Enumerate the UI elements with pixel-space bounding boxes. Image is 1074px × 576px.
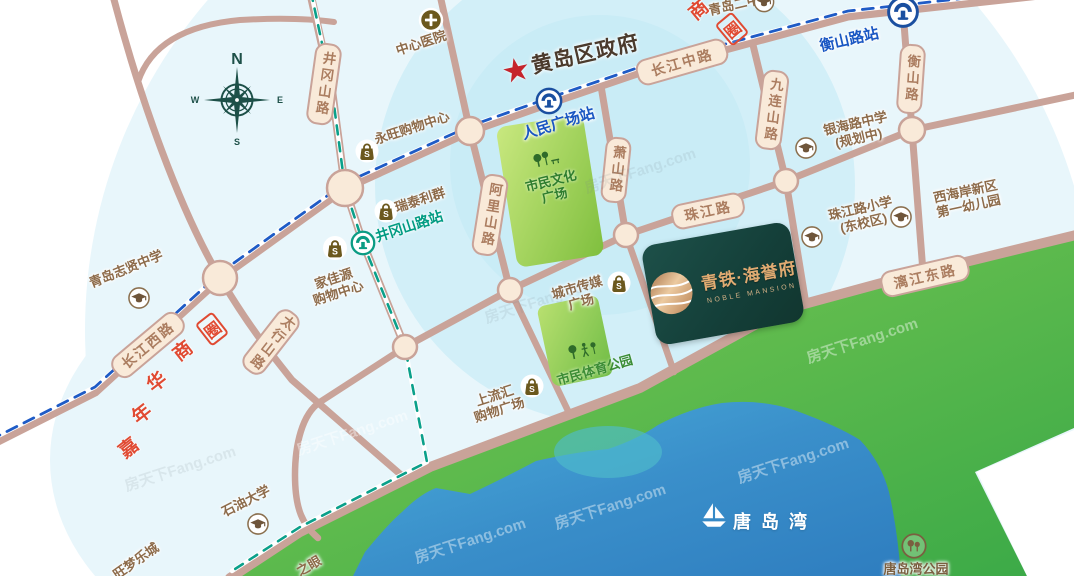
compass-e: E [277,95,283,105]
compass-n: N [231,51,243,69]
park-label-tangdao: 唐岛湾公园 [883,561,948,576]
location-map: N S W E 长江中路 长江西路 珠江路 漓江东路 井冈山路 阿里山路 萧山路… [0,0,1074,576]
metro-station-icon-hengshan [887,0,919,28]
halo-over-water [554,426,662,478]
school-icon-qingdao-no2 [753,0,775,13]
svg-text:S: S [332,246,338,256]
park-icon-tangdao [901,533,927,559]
metro-station-icon-renmin [536,88,563,115]
school-icon-kindergarten [890,206,913,229]
svg-text:S: S [364,149,370,159]
school-icon-petroleum-univ [247,513,270,536]
school-icon-yinhai [795,137,818,160]
government-star-icon: ★ [499,51,534,88]
shopping-icon-shangliuhui: S [520,374,544,398]
project-logo-wave-icon [645,263,699,322]
road-badge-hengshan: 衡山路 [896,43,927,115]
sailboat-icon [699,501,729,529]
school-icon-zhixian [128,287,151,310]
bay-label: 唐岛湾 [733,508,817,534]
shopping-icon-jiajiayuan: S [323,236,348,261]
svg-text:S: S [383,209,389,219]
project-logo-text: 青铁·海誉府 NOBLE MANSION [699,253,800,305]
compass-w: W [191,95,200,105]
compass-s: S [234,137,240,147]
shopping-icon-media-plaza: S [607,271,631,295]
svg-text:S: S [529,384,535,394]
svg-text:S: S [616,281,622,291]
metro-station-icon-jinggangshan [351,231,376,256]
school-icon-zhujiang-primary [801,226,824,249]
